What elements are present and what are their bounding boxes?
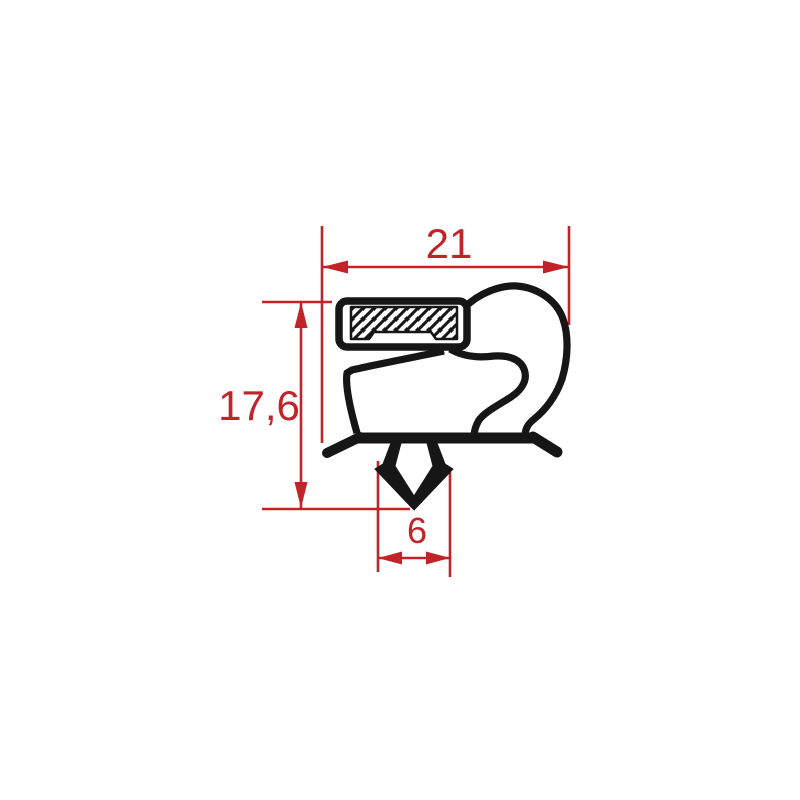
drawing-canvas: 21 17,6 6 <box>0 0 800 800</box>
side-flap-and-wall <box>347 351 444 433</box>
barbed-anchor <box>375 443 453 510</box>
gasket-profile <box>327 286 567 510</box>
arrowhead-width-right <box>543 261 569 274</box>
inner-lip-curve <box>450 349 525 437</box>
gasket-cross-section-drawing: 21 17,6 6 <box>0 0 800 800</box>
dimension-width-label: 21 <box>426 220 473 267</box>
arrowhead-anchor-left <box>378 552 402 565</box>
arrowhead-height-bottom <box>295 482 308 508</box>
arrowhead-height-top <box>295 302 308 328</box>
dimension-anchor-label: 6 <box>407 510 427 551</box>
arrowhead-anchor-right <box>426 552 450 565</box>
left-fin <box>327 437 360 453</box>
arrowhead-width-left <box>322 261 348 274</box>
right-fin <box>533 437 557 452</box>
dimension-height-label: 17,6 <box>218 382 300 429</box>
